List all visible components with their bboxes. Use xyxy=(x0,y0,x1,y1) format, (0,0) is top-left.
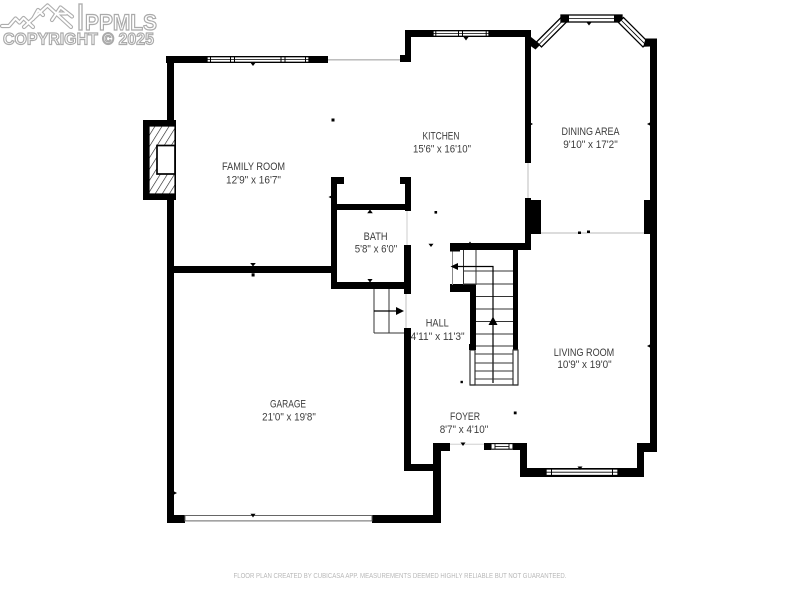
svg-text:FLOOR PLAN CREATED BY CUBICASA: FLOOR PLAN CREATED BY CUBICASA APP. MEAS… xyxy=(234,573,567,580)
svg-text:10'9" x 19'0": 10'9" x 19'0" xyxy=(557,359,611,371)
svg-text:8'7" x 4'10": 8'7" x 4'10" xyxy=(440,424,489,436)
svg-text:KITCHEN: KITCHEN xyxy=(423,131,460,143)
svg-text:21'0" x 19'8": 21'0" x 19'8" xyxy=(262,412,316,424)
svg-text:12'9" x 16'7": 12'9" x 16'7" xyxy=(226,175,281,187)
svg-text:4'11" x 11'3": 4'11" x 11'3" xyxy=(411,331,465,343)
svg-text:FOYER: FOYER xyxy=(450,411,480,423)
svg-text:LIVING ROOM: LIVING ROOM xyxy=(554,347,615,359)
svg-text:COPYRIGHT © 2025: COPYRIGHT © 2025 xyxy=(3,30,154,49)
svg-text:FAMILY ROOM: FAMILY ROOM xyxy=(222,161,285,173)
svg-text:DINING AREA: DINING AREA xyxy=(562,126,620,138)
svg-text:HALL: HALL xyxy=(426,318,449,330)
svg-text:9'10" x 17'2": 9'10" x 17'2" xyxy=(563,139,618,151)
svg-text:GARAGE: GARAGE xyxy=(270,399,306,411)
svg-text:5'8" x 6'0": 5'8" x 6'0" xyxy=(355,244,398,256)
svg-text:BATH: BATH xyxy=(364,231,388,243)
svg-text:15'6" x 16'10": 15'6" x 16'10" xyxy=(413,144,471,156)
